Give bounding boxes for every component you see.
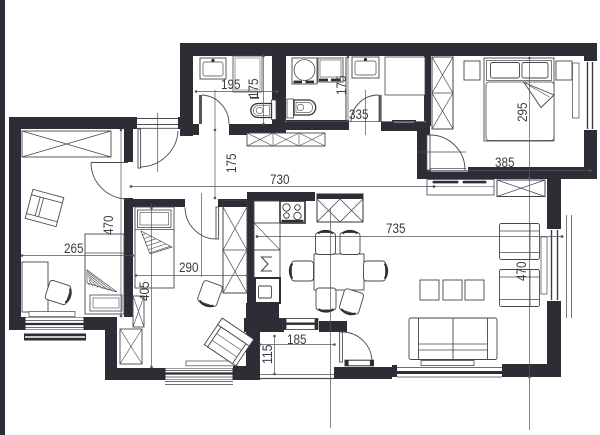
svg-text:295: 295 <box>515 103 530 123</box>
svg-text:290: 290 <box>179 260 199 275</box>
svg-text:115: 115 <box>260 345 275 365</box>
svg-text:385: 385 <box>495 155 515 170</box>
svg-text:195: 195 <box>221 77 241 92</box>
svg-text:175: 175 <box>224 154 239 174</box>
svg-text:265: 265 <box>64 241 84 256</box>
svg-text:730: 730 <box>270 172 290 187</box>
svg-text:735: 735 <box>386 221 406 236</box>
svg-text:175: 175 <box>334 76 349 96</box>
svg-text:175: 175 <box>246 79 261 99</box>
svg-text:185: 185 <box>287 332 307 347</box>
svg-text:470: 470 <box>514 262 529 282</box>
svg-text:335: 335 <box>349 107 369 122</box>
svg-text:405: 405 <box>137 282 152 302</box>
svg-text:470: 470 <box>101 216 116 236</box>
